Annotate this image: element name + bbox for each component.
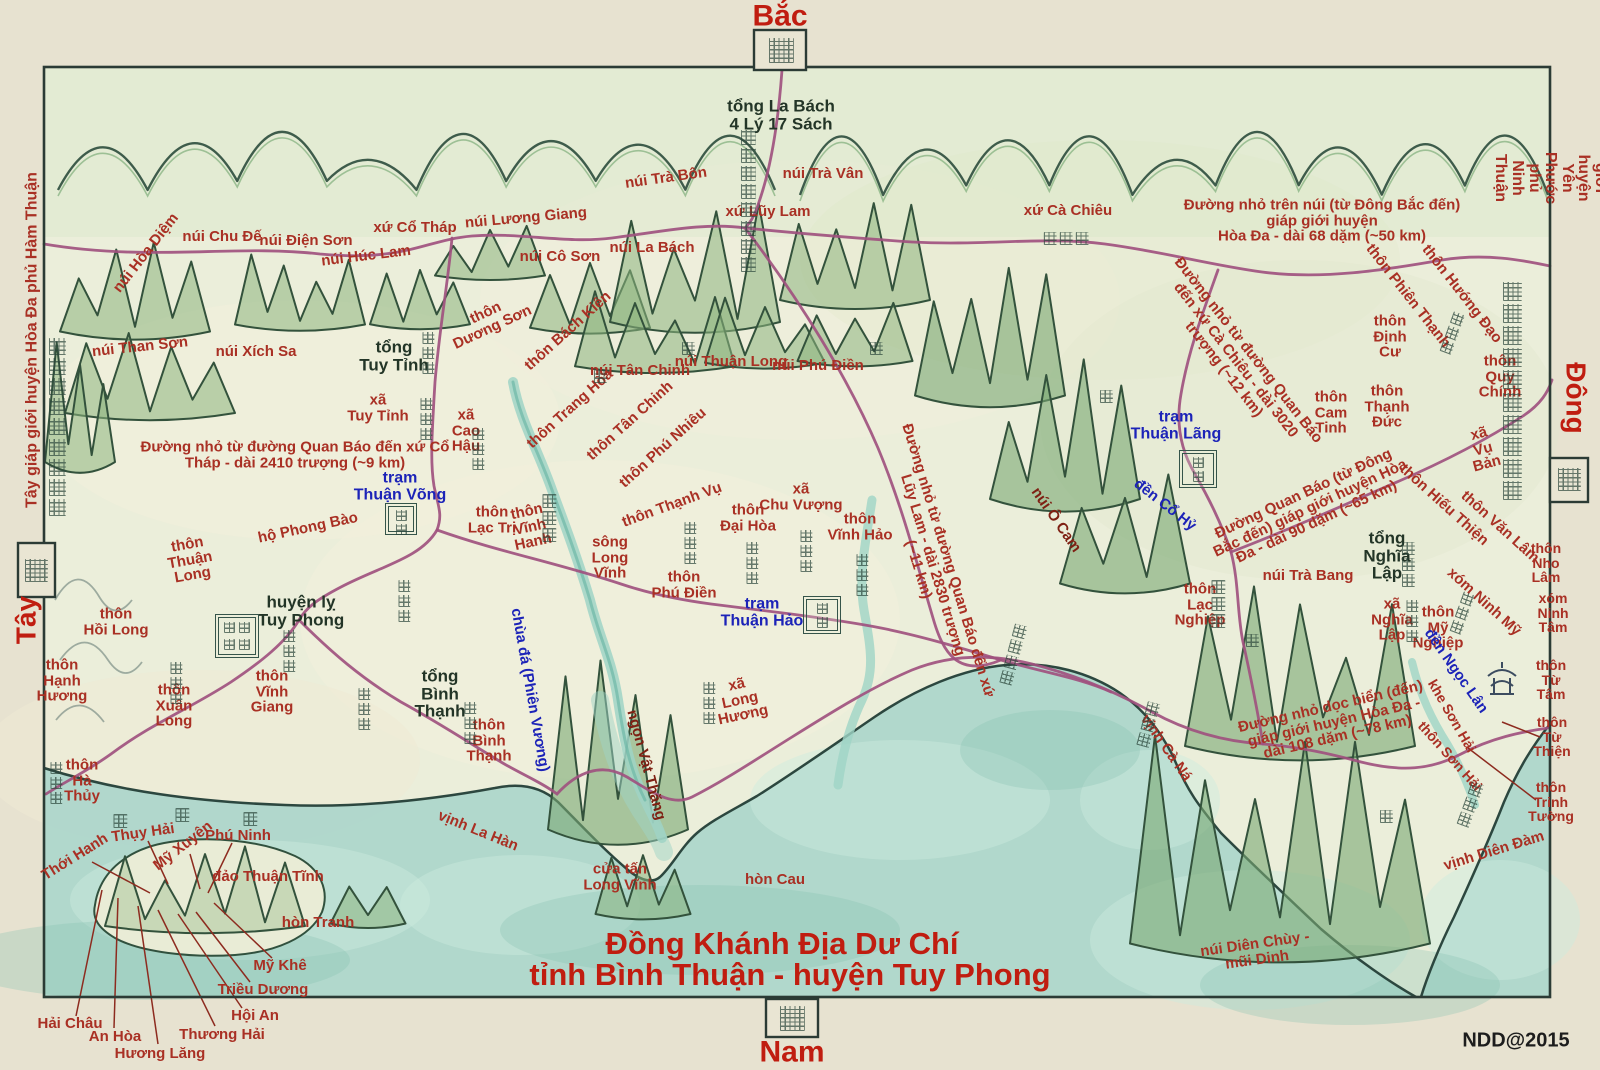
historical-map: Bắc Nam Tây Đông Tây giáp giới huyện Hòa… — [0, 0, 1600, 1070]
map-artwork — [0, 0, 1600, 1070]
